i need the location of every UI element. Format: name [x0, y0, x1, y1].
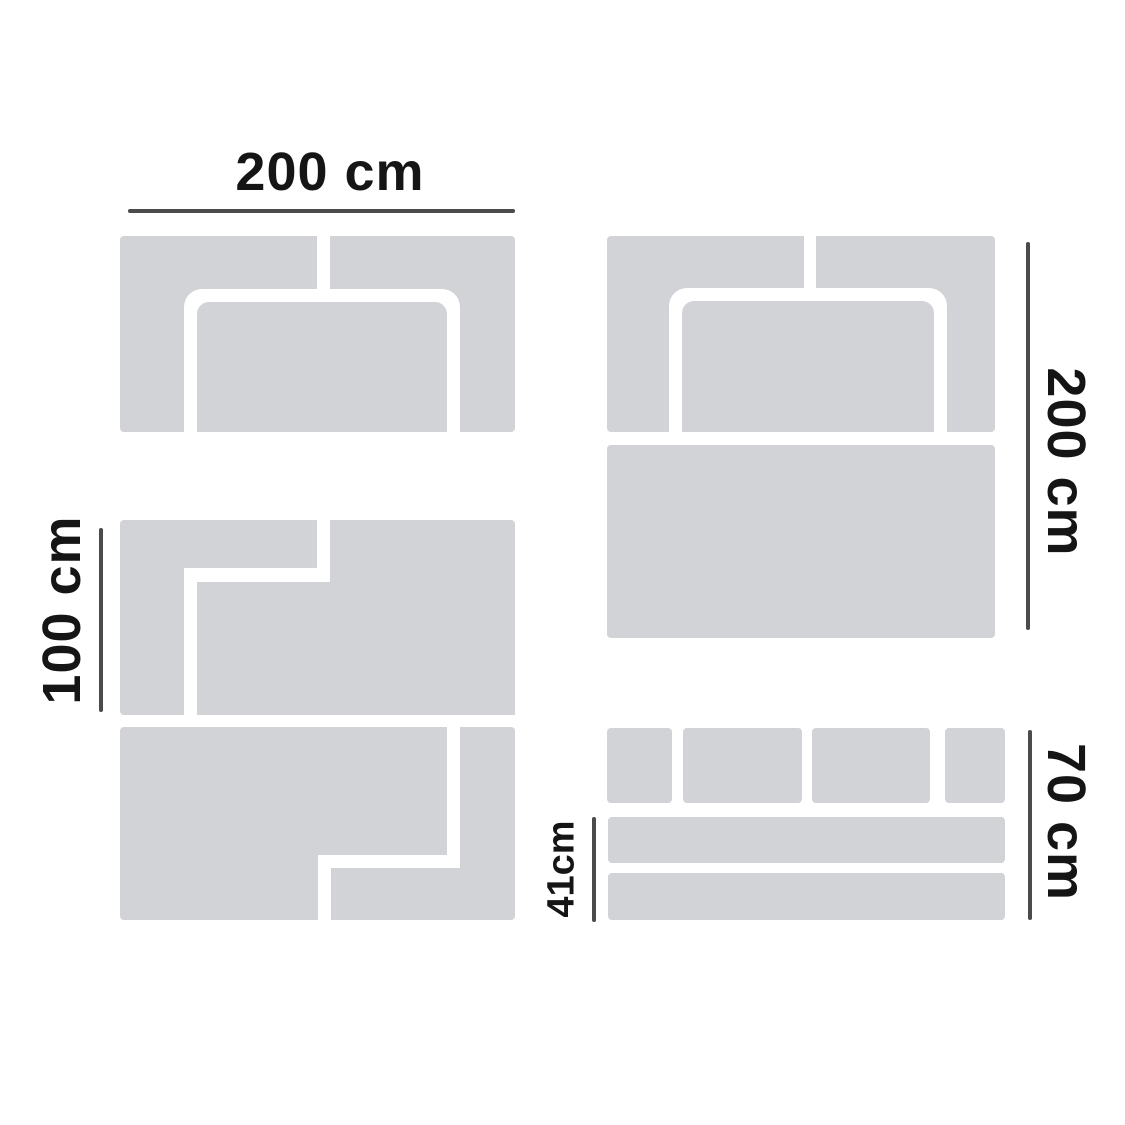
panel-top-right-inner-piece [682, 301, 934, 432]
left-height-measure-line [99, 528, 103, 712]
strip-piece-1 [608, 817, 1005, 863]
top-width-label: 200 cm [235, 141, 424, 203]
small-piece-1 [607, 728, 672, 803]
dimension-diagram: 200 cm 100 cm 200 cm 70 cm 41cm [0, 0, 1125, 1125]
panel-middle-left-main-piece [197, 582, 515, 715]
panel-top-left [120, 236, 515, 432]
panel-top-left-top-slot [317, 235, 330, 297]
panel-bottom-left [120, 727, 515, 920]
panel-top-right [607, 236, 995, 432]
panel-middle-left-horizontal-seam [184, 568, 330, 582]
right-height-measure-line [1026, 242, 1030, 630]
panel-middle-left-top-slot [317, 519, 330, 582]
top-width-measure-line [128, 209, 515, 213]
panel-bottom-left-bottom-slot [318, 855, 331, 921]
bottom-right-height-label: 70 cm [1035, 743, 1097, 901]
panel-top-right-top-slot [804, 235, 816, 292]
strip-piece-2 [608, 873, 1005, 920]
panel-middle-left [120, 520, 515, 715]
bottom-right-height-measure-line [1028, 730, 1032, 920]
right-height-label: 200 cm [1035, 367, 1097, 556]
left-height-label: 100 cm [31, 515, 93, 704]
panel-bottom-left-horizontal-seam [318, 855, 460, 868]
panel-top-left-inner-piece [197, 302, 447, 432]
panel-middle-left-vertical-seam [184, 568, 197, 715]
small-piece-2 [683, 728, 802, 803]
small-piece-3 [812, 728, 930, 803]
panel-middle-right [607, 445, 995, 638]
panel-bottom-left-vertical-seam [447, 727, 460, 868]
strip-height-label: 41cm [541, 820, 584, 917]
small-piece-4 [945, 728, 1005, 803]
strip-height-measure-line [592, 817, 596, 922]
